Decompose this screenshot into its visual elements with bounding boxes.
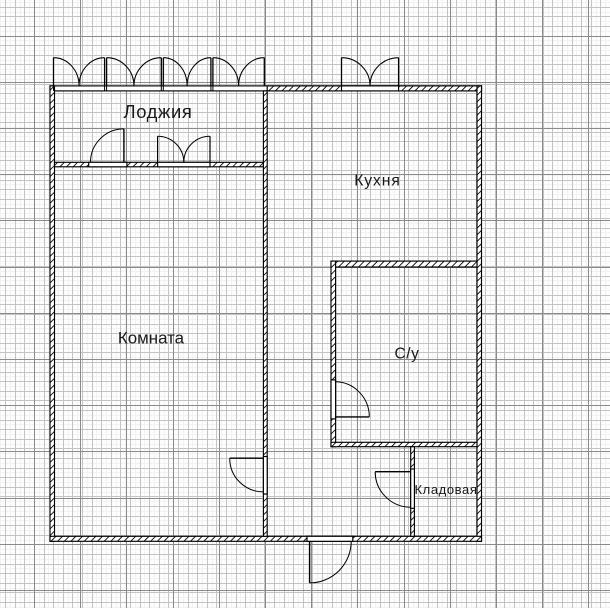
svg-text:Кладовая: Кладовая — [414, 482, 477, 497]
svg-text:С/у: С/у — [395, 345, 420, 362]
svg-text:Лоджия: Лоджия — [123, 101, 192, 122]
svg-text:Комната: Комната — [118, 329, 185, 348]
svg-text:Кухня: Кухня — [354, 173, 400, 190]
